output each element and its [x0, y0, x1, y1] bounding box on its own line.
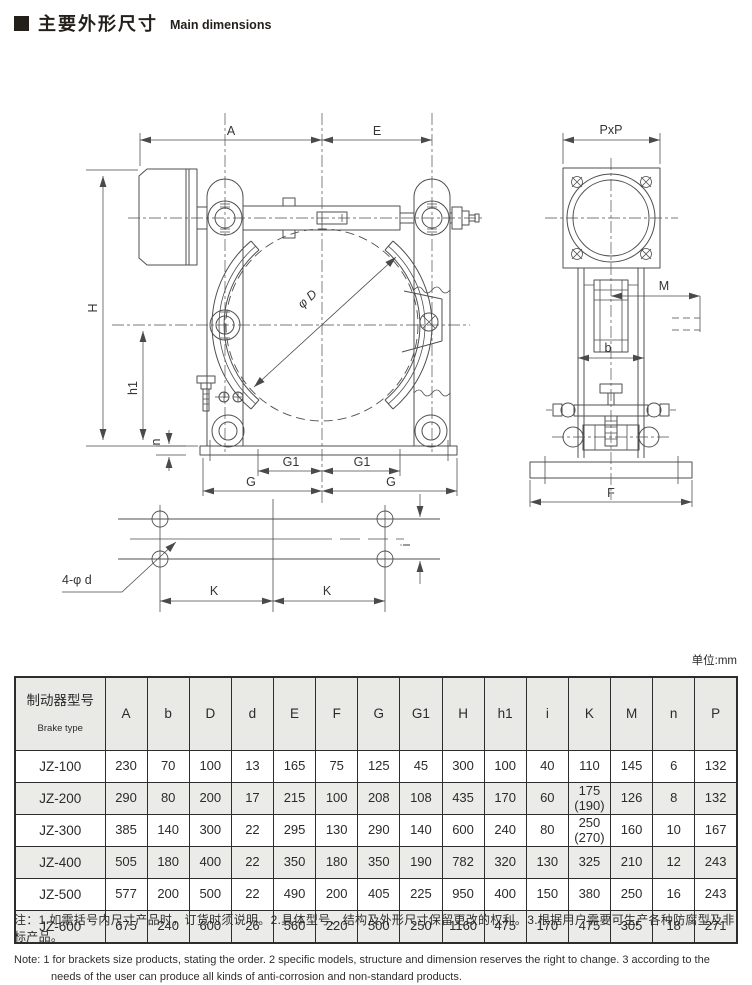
dim-label-b: b [605, 341, 612, 355]
table-header-row: 制动器型号 Brake type AbDdEFGG1Hh1iKMnP [15, 677, 737, 751]
cell-model: JZ-100 [15, 751, 105, 783]
dim-label-F: F [607, 486, 615, 500]
cell-a: 505 [105, 847, 147, 879]
cell-k: 325 [568, 847, 610, 879]
notes-block: 注：1.如需括号内尺寸产品时，订货时须说明。2.具体型号、结构及外形尺寸保留更改… [14, 911, 741, 985]
dim-label-phiD: φ D [295, 287, 320, 311]
page-title-en: Main dimensions [170, 18, 271, 32]
cell-i: 80 [526, 815, 568, 847]
col-header-h: H [442, 677, 484, 751]
col-header-d: D [189, 677, 231, 751]
dim-label-G-right: G [386, 475, 396, 489]
cell-k: 175 (190) [568, 783, 610, 815]
cell-m: 145 [611, 751, 653, 783]
cell-b: 180 [147, 847, 189, 879]
cell-d: 17 [231, 783, 273, 815]
cell-a: 577 [105, 879, 147, 911]
dim-label-M: M [659, 279, 669, 293]
cell-model: JZ-200 [15, 783, 105, 815]
cell-e: 215 [274, 783, 316, 815]
cell-g1: 108 [400, 783, 442, 815]
cell-h: 950 [442, 879, 484, 911]
cell-g1: 140 [400, 815, 442, 847]
cell-h1: 170 [484, 783, 526, 815]
cell-m: 126 [611, 783, 653, 815]
cell-model: JZ-500 [15, 879, 105, 911]
cell-b: 140 [147, 815, 189, 847]
cell-p: 132 [695, 751, 737, 783]
cell-d: 22 [231, 879, 273, 911]
col-header-model-en: Brake type [16, 724, 105, 735]
page-title-zh: 主要外形尺寸 [38, 10, 158, 36]
cell-f: 200 [316, 879, 358, 911]
cell-a: 385 [105, 815, 147, 847]
cell-p: 167 [695, 815, 737, 847]
cell-n: 6 [653, 751, 695, 783]
cell-e: 165 [274, 751, 316, 783]
cell-p: 132 [695, 783, 737, 815]
table-row: JZ-200290802001721510020810843517060175 … [15, 783, 737, 815]
cell-g1: 45 [400, 751, 442, 783]
cell-i: 60 [526, 783, 568, 815]
cell-b: 70 [147, 751, 189, 783]
col-header-m: M [611, 677, 653, 751]
front-view [112, 113, 482, 503]
cell-g: 125 [358, 751, 400, 783]
col-header-d: d [231, 677, 273, 751]
cell-d: 13 [231, 751, 273, 783]
col-header-n: n [653, 677, 695, 751]
cell-d: 22 [231, 847, 273, 879]
cell-e: 295 [274, 815, 316, 847]
cell-f: 130 [316, 815, 358, 847]
cell-g: 208 [358, 783, 400, 815]
col-header-f: F [316, 677, 358, 751]
cell-d: 400 [189, 847, 231, 879]
catalog-page: { "header": { "title_zh": "主要外形尺寸", "tit… [0, 0, 752, 967]
note-zh: 注：1.如需括号内尺寸产品时，订货时须说明。2.具体型号、结构及外形尺寸保留更改… [14, 911, 741, 945]
col-header-p: P [695, 677, 737, 751]
technical-drawing: A E H h1 n φ D G1 G1 G G [0, 60, 752, 640]
cell-p: 243 [695, 879, 737, 911]
dim-label-K-right: K [323, 584, 332, 598]
col-header-h1: h1 [484, 677, 526, 751]
col-header-g: G [358, 677, 400, 751]
cell-i: 40 [526, 751, 568, 783]
table-row: JZ-4005051804002235018035019078232013032… [15, 847, 737, 879]
square-bullet-icon [14, 16, 29, 31]
cell-k: 380 [568, 879, 610, 911]
dim-label-n: n [149, 438, 163, 445]
cell-model: JZ-300 [15, 815, 105, 847]
cell-n: 10 [653, 815, 695, 847]
dim-label-K-left: K [210, 584, 219, 598]
cell-n: 16 [653, 879, 695, 911]
side-view [530, 158, 692, 500]
cell-d: 500 [189, 879, 231, 911]
cell-m: 210 [611, 847, 653, 879]
dim-label-PxP: PxP [600, 123, 623, 137]
cell-d: 100 [189, 751, 231, 783]
cell-k: 250 (270) [568, 815, 610, 847]
cell-e: 490 [274, 879, 316, 911]
cell-k: 110 [568, 751, 610, 783]
cell-f: 180 [316, 847, 358, 879]
dim-label-H: H [86, 303, 100, 312]
cell-g1: 190 [400, 847, 442, 879]
cell-g: 290 [358, 815, 400, 847]
cell-f: 100 [316, 783, 358, 815]
cell-h1: 100 [484, 751, 526, 783]
centerlines [112, 113, 482, 503]
dimensions-table: 制动器型号 Brake type AbDdEFGG1Hh1iKMnP JZ-10… [14, 676, 738, 944]
col-header-a: A [105, 677, 147, 751]
col-header-model-zh: 制动器型号 [16, 693, 105, 708]
cell-a: 290 [105, 783, 147, 815]
cell-g: 350 [358, 847, 400, 879]
dim-label-4-phi-d: 4-φ d [62, 573, 92, 587]
unit-label: 单位:mm [692, 652, 737, 668]
col-header-model: 制动器型号 Brake type [15, 677, 105, 751]
dim-label-G-left: G [246, 475, 256, 489]
cell-b: 200 [147, 879, 189, 911]
cell-d: 200 [189, 783, 231, 815]
cell-e: 350 [274, 847, 316, 879]
dim-label-A: A [227, 124, 236, 138]
cell-i: 130 [526, 847, 568, 879]
cell-n: 12 [653, 847, 695, 879]
cell-m: 250 [611, 879, 653, 911]
cell-n: 8 [653, 783, 695, 815]
cell-model: JZ-400 [15, 847, 105, 879]
col-header-g1: G1 [400, 677, 442, 751]
base-plan-dimensions [62, 494, 420, 601]
cell-a: 230 [105, 751, 147, 783]
side-view-dimensions [530, 133, 700, 507]
table-row: JZ-5005772005002249020040522595040015038… [15, 879, 737, 911]
front-view-dimensions [86, 133, 457, 496]
base-plan-view [118, 499, 440, 612]
cell-d: 22 [231, 815, 273, 847]
cell-b: 80 [147, 783, 189, 815]
cell-p: 243 [695, 847, 737, 879]
note-en: Note: 1 for brackets size products, stat… [14, 952, 741, 985]
cell-h: 782 [442, 847, 484, 879]
col-header-b: b [147, 677, 189, 751]
col-header-k: K [568, 677, 610, 751]
cell-f: 75 [316, 751, 358, 783]
table-row: JZ-1002307010013165751254530010040110145… [15, 751, 737, 783]
dim-label-G1-left: G1 [283, 455, 300, 469]
cell-h1: 240 [484, 815, 526, 847]
dim-label-E: E [373, 124, 381, 138]
cell-h1: 320 [484, 847, 526, 879]
col-header-i: i [526, 677, 568, 751]
col-header-e: E [274, 677, 316, 751]
dim-label-G1-right: G1 [354, 455, 371, 469]
cell-h: 600 [442, 815, 484, 847]
dim-label-i: i [399, 544, 413, 547]
cell-h: 300 [442, 751, 484, 783]
cell-m: 160 [611, 815, 653, 847]
dim-label-h1: h1 [126, 381, 140, 395]
page-title: 主要外形尺寸 Main dimensions [14, 10, 271, 36]
cell-h1: 400 [484, 879, 526, 911]
cell-i: 150 [526, 879, 568, 911]
cell-g: 405 [358, 879, 400, 911]
cell-h: 435 [442, 783, 484, 815]
cell-d: 300 [189, 815, 231, 847]
cell-g1: 225 [400, 879, 442, 911]
table-row: JZ-3003851403002229513029014060024080250… [15, 815, 737, 847]
